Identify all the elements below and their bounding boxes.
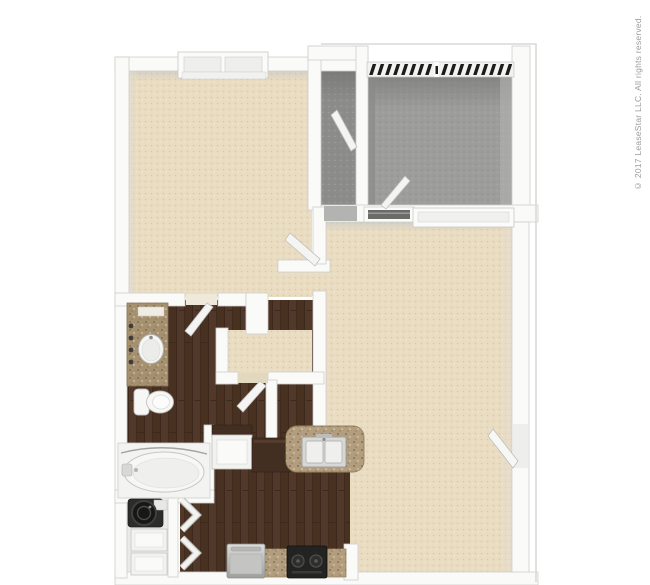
hall-living-divider-wall bbox=[266, 380, 277, 442]
storage-closet-floor bbox=[321, 60, 357, 207]
under-bar-cabinet bbox=[252, 438, 290, 472]
bedroom-window bbox=[178, 52, 268, 79]
toilet bbox=[134, 389, 174, 415]
walk-in-closet-floor bbox=[228, 330, 312, 374]
storage-patio-divider-wall bbox=[356, 46, 368, 210]
bedroom-storage-divider-wall bbox=[308, 46, 321, 210]
patio-railing bbox=[367, 62, 514, 77]
kitchen-double-sink bbox=[302, 434, 346, 467]
living-room-floor bbox=[322, 222, 514, 574]
range bbox=[287, 546, 327, 578]
bedroom-bottom-wall-right bbox=[218, 293, 246, 306]
garden-bathtub bbox=[118, 443, 210, 498]
left-wall-upper bbox=[115, 57, 129, 309]
closet-door-threshold bbox=[238, 373, 268, 383]
bedroom-right-wall-lower bbox=[313, 291, 326, 434]
copyright-watermark: © 2017 LeaseStar LLC. All rights reserve… bbox=[633, 12, 643, 194]
floor-plan-page: © 2017 LeaseStar LLC. All rights reserve… bbox=[0, 0, 650, 585]
floor-plan-image bbox=[0, 0, 650, 585]
living-right-wall bbox=[512, 222, 529, 580]
refrigerator bbox=[227, 544, 265, 578]
living-room-window bbox=[413, 208, 514, 227]
storage-door-threshold bbox=[324, 206, 357, 221]
washer bbox=[128, 499, 167, 527]
pantry-cabinet bbox=[212, 425, 252, 469]
patio-right-wall bbox=[512, 46, 530, 210]
patio-sliding-door bbox=[364, 207, 414, 222]
bathroom-door-threshold bbox=[186, 294, 217, 305]
walk-in-closet-bottom-wall-left bbox=[216, 372, 238, 384]
patio-floor bbox=[366, 62, 514, 207]
hall-wall-stub bbox=[246, 293, 268, 334]
laundry-right-wall bbox=[168, 497, 178, 577]
vanity-sink bbox=[139, 335, 164, 364]
left-wall-lower bbox=[115, 297, 127, 578]
